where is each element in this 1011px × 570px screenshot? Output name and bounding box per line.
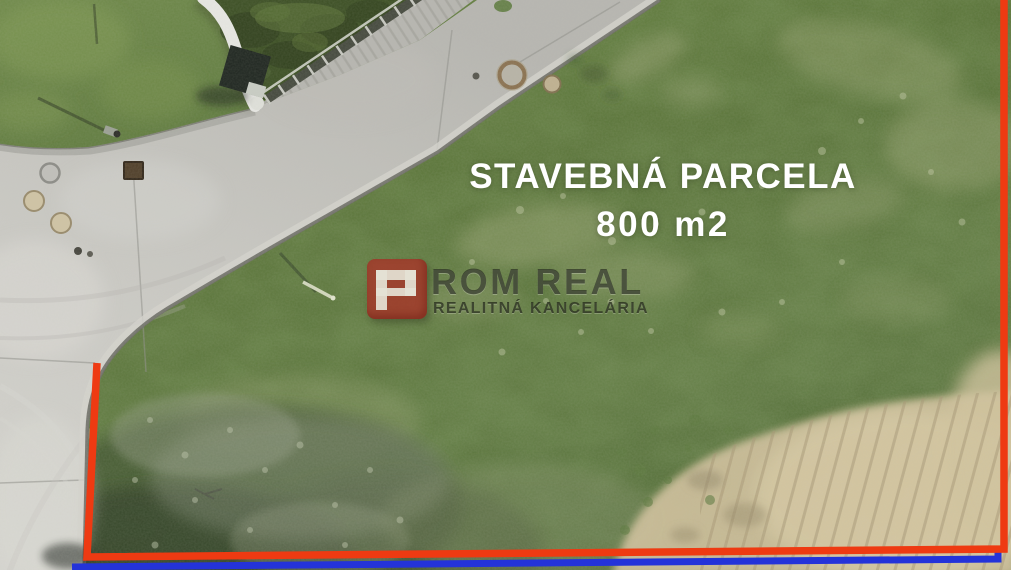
aerial-photo: STAVEBNÁ PARCELA 800 m2 ROM REAL REALITN… xyxy=(0,0,1011,570)
photo-grain-overlay xyxy=(0,0,1011,570)
scene-graphic xyxy=(0,0,1011,570)
